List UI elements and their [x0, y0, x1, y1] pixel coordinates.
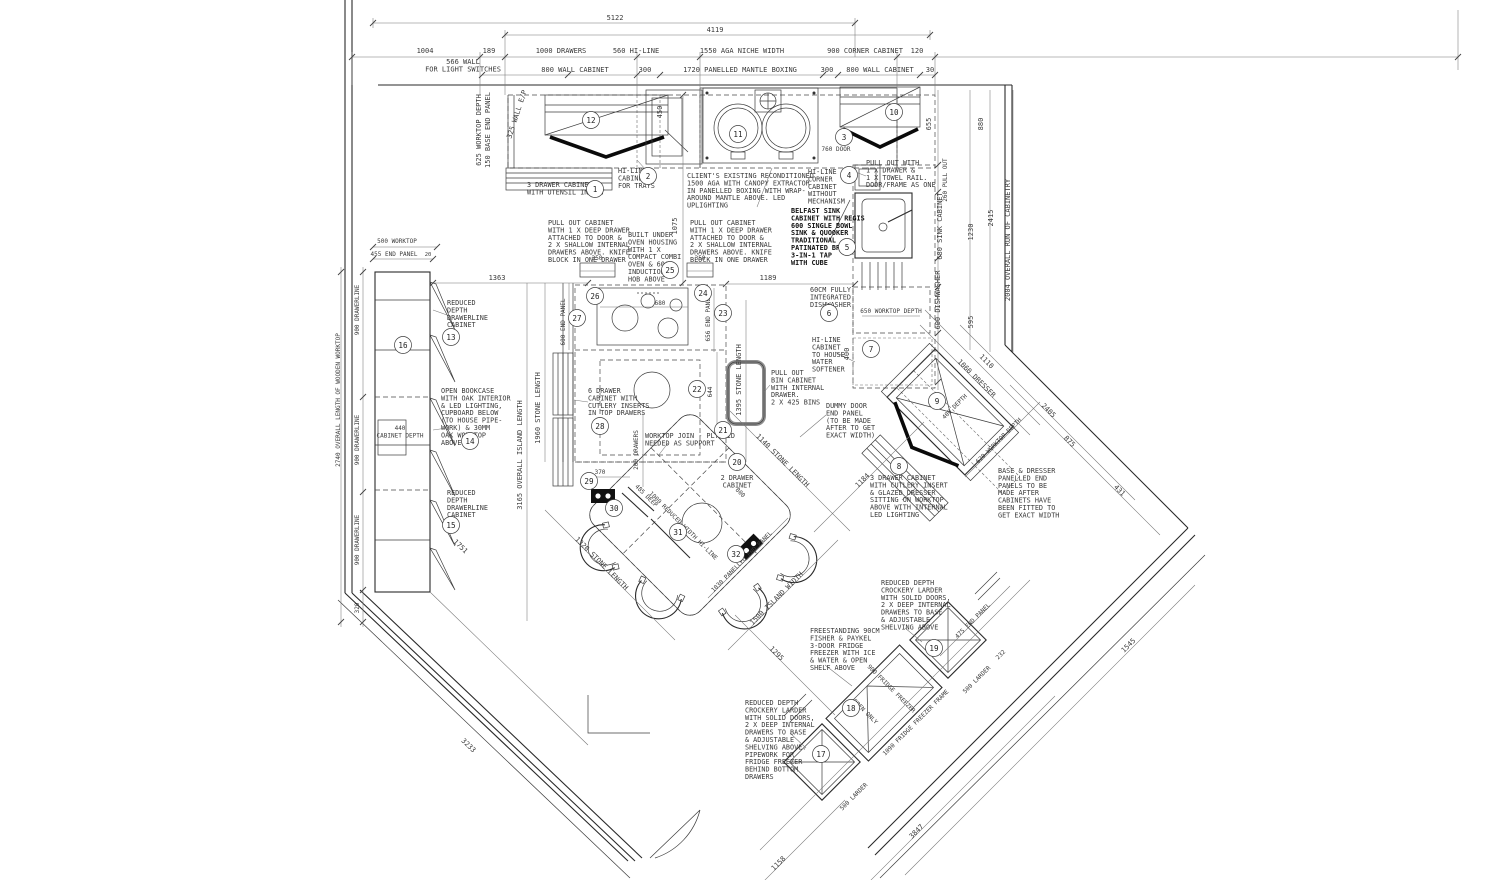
dim-880: 880 — [977, 118, 985, 131]
callout-19: 19 — [929, 644, 939, 653]
note-belfast-sink: BELFAST SINKCABINET WITH REGIS600 SINGLE… — [791, 207, 865, 267]
dim-200-drawers: 200 DRAWERS — [633, 430, 640, 470]
callout-7: 7 — [869, 345, 874, 354]
callout-18: 18 — [846, 704, 856, 713]
callout-25: 25 — [665, 266, 674, 275]
callout-10: 10 — [889, 108, 899, 117]
dim-overall-top: 5122 — [607, 14, 624, 22]
dim-oven-450: 450 — [656, 106, 664, 119]
dim-20: 20 — [425, 252, 432, 258]
dim-1189: 1189 — [760, 274, 777, 282]
callout-17: 17 — [816, 750, 825, 759]
island-end-panel-right — [687, 263, 713, 277]
dim-3233: 3233 — [460, 737, 478, 754]
dim-875: 875 — [1062, 434, 1077, 449]
note-bin-cabinet: PULL OUTBIN CABINETWITH INTERNALDRAWER.2… — [771, 369, 824, 407]
dim-stone-1320: 1320 STONE LENGTH — [573, 535, 629, 591]
dim-320: 320 — [354, 602, 361, 613]
dim-1363: 1363 — [489, 274, 506, 282]
dim-300-l: 300 — [639, 66, 652, 74]
dim-900-drawerline-3: 900 DRAWERLINE — [354, 514, 361, 565]
note-reduced-drawerline-top: REDUCEDDEPTHDRAWERLINECABINET — [447, 299, 488, 329]
callout-6: 6 — [827, 309, 832, 318]
dim-760-door: 760 DOOR — [822, 146, 851, 153]
note-dresser-3-drawer: 3 DRAWER CABINETWITH CUTLERY INSERT& GLA… — [870, 474, 948, 519]
callout-16: 16 — [398, 341, 408, 350]
note-pullout-left: PULL OUT CABINETWITH 1 X DEEP DRAWERATTA… — [548, 219, 631, 264]
callout-4: 4 — [847, 171, 852, 180]
callout-13: 13 — [446, 333, 455, 342]
dimension-lines — [338, 10, 1461, 880]
top-run-worktop — [508, 95, 935, 168]
dim-corner-cabinet: 900 CORNER CABINET — [827, 47, 904, 55]
dim-1295: 1295 — [768, 645, 786, 663]
dim-120: 120 — [911, 47, 924, 55]
dim-1030-panel: 1030 PANELLED END PANEL — [710, 530, 774, 594]
dim-900-fridge: 900 FRIDGE FREEZER — [866, 663, 917, 714]
note-corner-no-mechanism: HI-LINECORNERCABINETWITHOUTMECHANISM — [808, 168, 845, 206]
dim-566-wall: 566 WALLFOR LIGHT SWITCHES — [425, 58, 501, 73]
dim-stone-1395: 1395 STONE LENGTH — [735, 344, 743, 416]
aga-hotplate-right — [762, 104, 810, 152]
dim-2405: 2405 — [1040, 402, 1058, 420]
callout-11: 11 — [733, 130, 743, 139]
dim-aga-niche: 1550 AGA NICHE WIDTH — [700, 47, 784, 55]
callout-20: 20 — [732, 458, 742, 467]
dim-stone-1960: 1960 STONE LENGTH — [534, 372, 542, 444]
note-pullout-towel: PULL OUT WITH1 X DRAWER &1 X TOWEL RAIL.… — [866, 159, 936, 189]
callout-32: 32 — [731, 550, 740, 559]
dim-4119: 4119 — [707, 26, 724, 34]
dim-560-hiline: 560 HI-LINE — [613, 47, 659, 55]
dim-1184: 1184 — [854, 472, 872, 490]
note-end-panels: BASE & DRESSERPANELLED ENDPANELS TO BEMA… — [998, 467, 1059, 519]
floor-plan-page: 5122 4119 1004 189 1000 DRAWERS 560 HI-L… — [0, 0, 1500, 880]
dim-wall-ep-325: 325 WALL E/P — [505, 89, 528, 140]
kitchen-plan-drawing: 5122 4119 1004 189 1000 DRAWERS 560 HI-L… — [0, 0, 1500, 880]
callout-9: 9 — [935, 397, 940, 406]
belfast-sink — [855, 193, 912, 258]
callout-5: 5 — [845, 243, 850, 252]
dim-base-end-panel: 150 BASE END PANEL — [484, 92, 492, 168]
dim-595: 595 — [967, 316, 975, 329]
note-dummy-door: DUMMY DOOREND PANEL(TO BE MADEAFTER TO G… — [826, 402, 875, 440]
callout-15: 15 — [446, 521, 455, 530]
dim-overall-wooden-worktop: 2740 OVERALL LENGTH OF WOODEN WORKTOP — [335, 333, 342, 467]
dim-1000-drawers: 1000 DRAWERS — [536, 47, 587, 55]
dim-1110: 1110 — [978, 353, 996, 371]
callout-31: 31 — [673, 528, 683, 537]
oven-housing — [646, 90, 702, 164]
dim-440-cabinet-depth: 440CABINET DEPTH — [377, 425, 424, 439]
dim-189: 189 — [483, 47, 496, 55]
dim-232: 232 — [995, 648, 1008, 661]
dim-500-worktop: 500 WORKTOP — [377, 238, 417, 245]
island-end-panel-left — [580, 263, 615, 277]
dim-600-end-panel: 600 END PANEL — [560, 298, 567, 345]
dim-worktop-depth-625: 625 WORKTOP DEPTH — [475, 94, 483, 166]
callout-29: 29 — [584, 477, 594, 486]
dim-hob-680: 680 — [655, 300, 666, 307]
dim-fridge-frame: 1090 FRIDGE FREEZER FRAME — [882, 688, 951, 757]
callout-1: 1 — [593, 185, 598, 194]
dim-620-worktop: 620 WORKTOP DEPTH — [975, 416, 1024, 465]
dim-455-end-panel: 455 END PANEL — [371, 251, 418, 258]
note-aga: CLIENT'S EXISTING RECONDITIONED1500 AGA … — [687, 172, 814, 210]
table-bowl — [682, 503, 722, 543]
dim-900-drawerline-2: 900 DRAWERLINE — [354, 414, 361, 465]
dim-1158: 1158 — [770, 855, 788, 873]
callout-14: 14 — [465, 437, 475, 446]
callout-21: 21 — [718, 426, 728, 435]
note-reduced-drawerline-bottom: REDUCEDDEPTHDRAWERLINECABINET — [447, 489, 488, 519]
callout-24: 24 — [698, 289, 708, 298]
dim-sink-cabinet: 680 SINK CABINET — [936, 192, 944, 260]
dim-1004: 1004 — [417, 47, 434, 55]
dim-2415: 2415 — [987, 210, 995, 227]
wall-cabinet-12-door-swing — [550, 137, 664, 157]
note-water-softener: HI-LINECABINETTO HOUSEWATERSOFTENER — [812, 336, 846, 374]
dim-dishwasher-600: 600 DISHWASHER — [934, 270, 942, 330]
callout-28: 28 — [595, 422, 605, 431]
dim-800-wall-cab-r: 800 WALL CABINET — [846, 66, 914, 74]
dim-island-3165: 3165 OVERALL ISLAND LENGTH — [516, 400, 524, 510]
dim-overall-cabinetry: 2004 OVERALL RUN OF CABINETRY — [1004, 178, 1012, 301]
dim-900-drawerline-1: 900 DRAWERLINE — [354, 284, 361, 335]
dim-475-end-panel: 475 END PANEL — [954, 602, 992, 640]
dim-1751: 1751 — [452, 538, 470, 555]
dim-worktop-650: 650 WORKTOP DEPTH — [860, 308, 922, 315]
callout-27: 27 — [572, 314, 581, 323]
dim-400-depth: 400 DEPTH — [941, 393, 969, 421]
callout-26: 26 — [590, 292, 600, 301]
dim-800-wall-cab-l: 800 WALL CABINET — [541, 66, 609, 74]
note-6-drawer: 6 DRAWERCABINET WITHCUTLERY INSERTSIN TO… — [588, 387, 649, 417]
callout-2: 2 — [646, 172, 651, 181]
callout-12: 12 — [586, 116, 595, 125]
note-larder-17: REDUCED DEPTHCROCKERY LARDERWITH SOLID D… — [745, 699, 815, 781]
callout-30: 30 — [609, 504, 619, 513]
callout-22: 22 — [692, 385, 701, 394]
dim-3847: 3847 — [908, 823, 926, 841]
dim-431: 431 — [1112, 483, 1127, 498]
dim-1230: 1230 — [967, 224, 975, 241]
sink-drainer-grooves — [862, 262, 902, 290]
dim-mantle-boxing: 1720 PANELLED MANTLE BOXING — [683, 66, 797, 74]
dim-300-r: 300 — [821, 66, 834, 74]
callout-23: 23 — [718, 309, 727, 318]
callout-3: 3 — [842, 133, 847, 142]
wall-cabinet-10-door-swing — [843, 129, 918, 147]
note-2-drawer: 2 DRAWERCABINET — [721, 474, 755, 489]
note-pullout-right: PULL OUT CABINETWITH 1 X DEEP DRAWERATTA… — [690, 219, 773, 264]
dim-644: 644 — [707, 386, 714, 397]
dim-655: 655 — [925, 118, 933, 131]
callout-8: 8 — [897, 462, 902, 471]
note-larder-19: REDUCED DEPTHCROCKERY LARDERWITH SOLID D… — [881, 579, 951, 631]
dim-370: 370 — [595, 469, 606, 476]
dim-stone-1140: 1140 STONE LENGTH — [754, 432, 810, 488]
dim-500-larder-high: 500 LARDER — [962, 664, 993, 695]
dim-500-larder-low: 500 LARDER — [839, 781, 870, 812]
dim-30: 30 — [926, 66, 934, 74]
